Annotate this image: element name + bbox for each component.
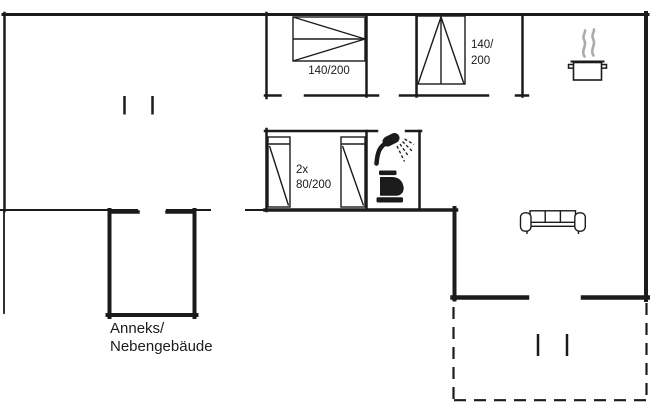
steam-wisp [583, 31, 585, 57]
bed-size-label: 140/200 [308, 65, 350, 77]
single-bed-left [268, 137, 290, 207]
bed-outline [341, 137, 365, 207]
steam-wisp [592, 30, 594, 56]
bed-line [293, 39, 365, 61]
bed-size-label: 140/ [471, 39, 494, 51]
interior-walls [0, 13, 648, 300]
double-bed-top [293, 17, 365, 61]
sofa-armrest [575, 213, 586, 231]
toilet-bowl [380, 177, 404, 196]
floorplan: 140/200 140/ 200 2x 80/200 Anneks/ Neben… [0, 0, 650, 420]
bed-size-label: 80/200 [296, 179, 331, 191]
bed-line [343, 146, 364, 206]
toilet-base [377, 197, 404, 202]
annex-label: Anneks/ [110, 320, 165, 337]
terrace-dashed-outline [454, 303, 648, 400]
pot-body [569, 62, 607, 81]
sofa-icon [521, 211, 586, 234]
labels: 140/200 140/ 200 2x 80/200 Anneks/ Neben… [110, 39, 494, 355]
steam-icon [583, 30, 594, 57]
annex-label: Nebengebäude [110, 338, 213, 355]
bed-size-label: 2x [296, 164, 308, 176]
bed-line [293, 17, 365, 39]
bed-line [441, 17, 464, 84]
sofa-seat [530, 211, 576, 227]
shower-icon [377, 138, 415, 164]
bed-size-label: 200 [471, 55, 490, 67]
sofa-armrest [521, 213, 532, 231]
single-bed-right [341, 137, 365, 207]
double-bed-right [417, 16, 465, 84]
bed-line [270, 146, 289, 206]
toilet-icon [377, 171, 404, 203]
annex-walls [108, 210, 197, 317]
bed-outline [268, 137, 290, 207]
pot-outline [574, 63, 602, 81]
bed-line [418, 17, 441, 84]
exterior-walls [3, 13, 648, 313]
toilet-lid [379, 171, 397, 176]
shower-head [388, 138, 395, 142]
cooking-pot-icon [569, 30, 607, 81]
shower-spray [397, 139, 414, 162]
spray-line [405, 139, 415, 145]
